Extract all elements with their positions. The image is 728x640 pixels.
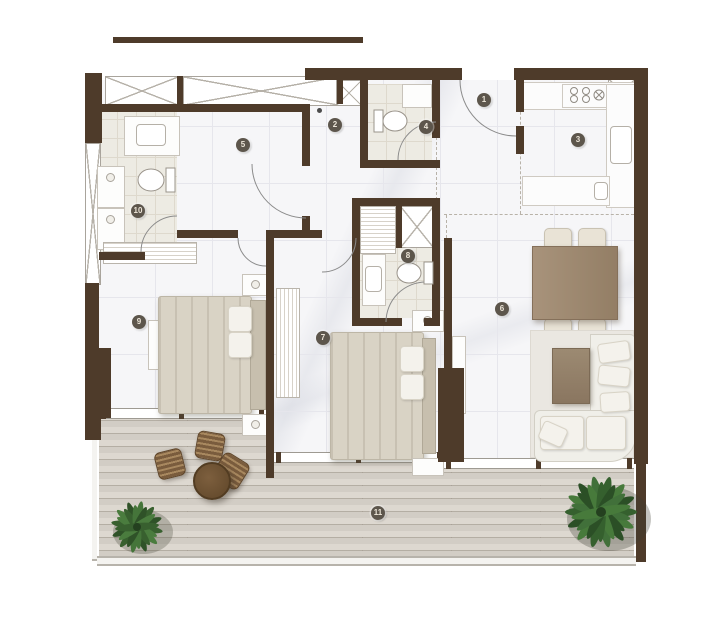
room-marker-8: 8 — [401, 249, 415, 263]
wall — [444, 238, 452, 374]
sofa-cushion — [586, 416, 626, 450]
ceiling-spot — [317, 108, 322, 113]
room-marker-5: 5 — [236, 138, 250, 152]
wall — [305, 68, 462, 80]
outdoor-table — [193, 462, 231, 500]
room-marker-4: 4 — [419, 120, 433, 134]
wall — [113, 37, 363, 43]
wall — [424, 318, 440, 326]
sofa-cushion — [597, 364, 631, 387]
pillow — [228, 332, 252, 358]
washbasin — [136, 124, 166, 146]
room-marker-10: 10 — [131, 204, 145, 218]
terrace-deck-left — [99, 417, 274, 563]
ceiling-line — [444, 214, 634, 215]
wall — [432, 206, 440, 326]
wall — [177, 76, 183, 104]
pillow — [228, 306, 252, 332]
bath-shelf — [360, 206, 396, 254]
wall — [360, 80, 368, 168]
wall — [352, 206, 360, 326]
wall — [85, 348, 111, 418]
pillow — [400, 346, 424, 372]
headboard — [250, 300, 266, 410]
washbasin — [365, 266, 382, 292]
room-marker-7: 7 — [316, 331, 330, 345]
kitchen-sink — [610, 126, 632, 164]
sofa-cushion — [599, 391, 630, 413]
stove — [562, 84, 608, 108]
room-marker-2: 2 — [328, 118, 342, 132]
wall — [516, 80, 524, 112]
shower-ensuite — [400, 206, 434, 248]
wardrobe — [276, 288, 300, 398]
washbasin-vanity — [402, 84, 432, 108]
room-marker-1: 1 — [477, 93, 491, 107]
wardrobe-shaft — [105, 76, 179, 106]
wall — [99, 104, 310, 112]
wall — [396, 206, 402, 248]
wall — [352, 318, 402, 326]
room-marker-11: 11 — [371, 506, 385, 520]
wall — [99, 252, 145, 260]
washer-dryer-stack — [97, 166, 125, 208]
floor-plan: 1 2 3 4 5 6 7 8 9 10 11 — [0, 0, 728, 640]
island-sink — [594, 182, 608, 200]
room-marker-9: 9 — [132, 315, 146, 329]
wall — [516, 126, 524, 154]
wall — [634, 80, 648, 464]
room-marker-6: 6 — [495, 302, 509, 316]
room-marker-3: 3 — [571, 133, 585, 147]
wall — [337, 76, 343, 104]
terrace-deck-right — [274, 462, 634, 563]
wall — [360, 160, 440, 168]
wall — [636, 464, 646, 562]
wall — [432, 80, 440, 138]
wall — [177, 230, 238, 238]
dining-table — [532, 246, 618, 320]
wall — [352, 198, 440, 206]
coffee-table — [552, 348, 590, 404]
wall — [274, 230, 322, 238]
wall — [85, 418, 101, 440]
headboard — [422, 338, 436, 454]
wardrobe-shaft — [183, 76, 339, 106]
wardrobe-panel — [438, 368, 464, 462]
terrace-railing — [97, 556, 636, 566]
pillow — [400, 374, 424, 400]
wall — [266, 238, 274, 478]
wall — [302, 104, 310, 166]
wall — [514, 68, 648, 80]
